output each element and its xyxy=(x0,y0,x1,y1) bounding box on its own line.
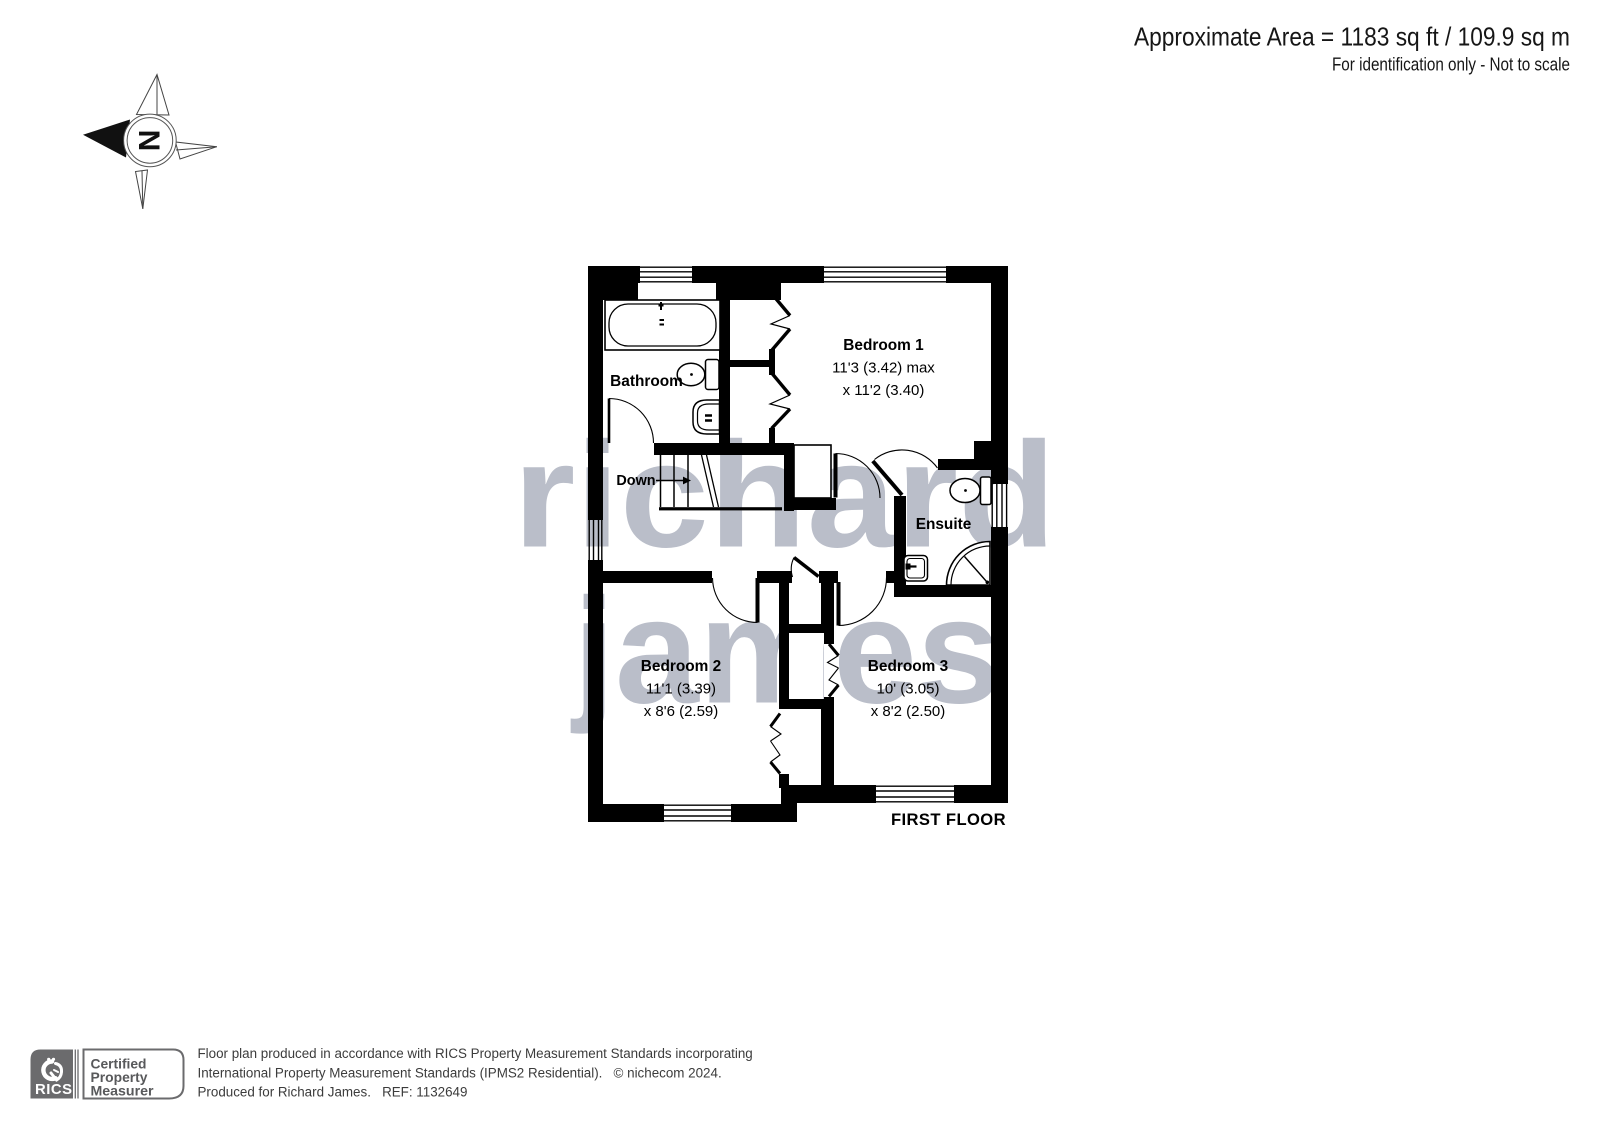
svg-text:Measurer: Measurer xyxy=(91,1083,155,1099)
svg-text:Approximate Area = 1183 sq ft: Approximate Area = 1183 sq ft / 109.9 sq… xyxy=(1134,22,1570,52)
svg-text:x 8'6 (2.59): x 8'6 (2.59) xyxy=(644,703,719,720)
svg-text:x 8'2 (2.50): x 8'2 (2.50) xyxy=(871,703,946,720)
svg-text:Floor plan produced in accorda: Floor plan produced in accordance with R… xyxy=(198,1046,753,1061)
svg-text:Bedroom 3: Bedroom 3 xyxy=(868,658,948,675)
svg-text:10' (3.05): 10' (3.05) xyxy=(877,681,940,698)
svg-text:RICS: RICS xyxy=(35,1082,73,1098)
svg-text:11'1 (3.39): 11'1 (3.39) xyxy=(646,681,716,698)
svg-text:Bathroom: Bathroom xyxy=(610,373,683,390)
svg-text:For identification only - Not: For identification only - Not to scale xyxy=(1332,54,1570,75)
svg-text:Bedroom 2: Bedroom 2 xyxy=(641,658,721,675)
svg-text:Bedroom 1: Bedroom 1 xyxy=(843,337,924,354)
svg-text:Produced for Richard James.: Produced for Richard James. REF: 1132649 xyxy=(198,1085,468,1100)
svg-text:x 11'2 (3.40): x 11'2 (3.40) xyxy=(843,382,925,399)
svg-text:11'3 (3.42) max: 11'3 (3.42) max xyxy=(832,360,935,377)
svg-text:FIRST FLOOR: FIRST FLOOR xyxy=(891,810,1006,829)
svg-text:Down: Down xyxy=(616,473,655,489)
svg-text:International Property Measure: International Property Measurement Stand… xyxy=(198,1065,722,1080)
svg-text:Ensuite: Ensuite xyxy=(916,516,972,533)
svg-text:N: N xyxy=(133,130,166,152)
